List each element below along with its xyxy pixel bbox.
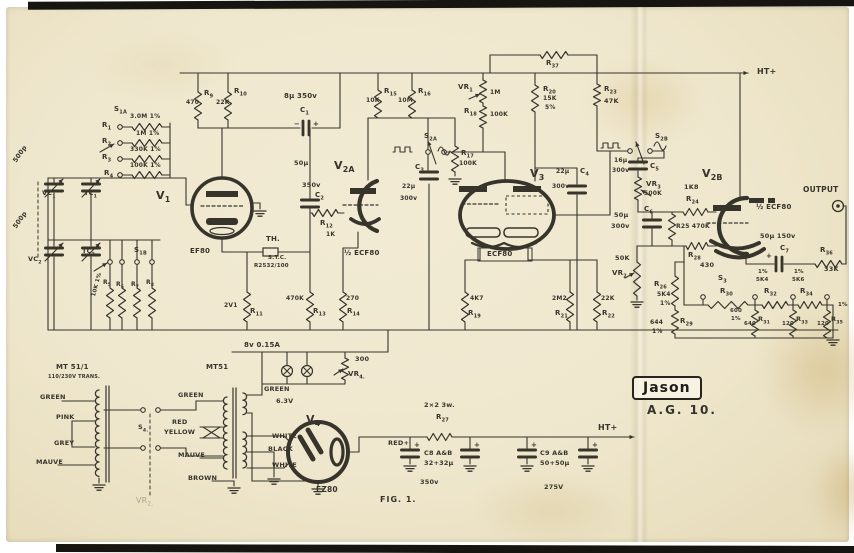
label-r30: R30 xyxy=(720,288,733,295)
label-r12: R12 xyxy=(320,220,333,227)
label-1m: 1M xyxy=(490,90,501,96)
label-vr3: VR3 xyxy=(646,181,661,188)
label-red: RED+ xyxy=(388,440,409,447)
label-15k: 15K xyxy=(543,96,557,102)
label-r25-470k: R25 470K xyxy=(676,224,710,230)
label-5: 5% xyxy=(545,105,556,111)
label-mauve-2: MAUVE xyxy=(178,452,205,459)
label-300v-2: 300v xyxy=(552,184,569,190)
label-ef80: EF80 xyxy=(190,248,210,255)
label-22k: 22K xyxy=(216,100,230,106)
label-r13: R13 xyxy=(313,308,326,315)
label-c2: C2 xyxy=(315,192,324,199)
label-33k: 33K xyxy=(824,266,839,273)
label-r36: R36 xyxy=(820,247,833,254)
model-number: A.G. 10. xyxy=(647,403,717,417)
jason-logo: Jason xyxy=(632,376,702,400)
label-4k7: 4K7 xyxy=(470,296,484,302)
label-640: 640 xyxy=(744,322,756,328)
label-275v: 275V xyxy=(544,484,563,491)
label-50-150v: 50µ 150v xyxy=(760,233,796,240)
label-500p-2: 500p xyxy=(12,210,28,229)
label-mt-51-1: MT 51/1 xyxy=(56,364,89,371)
label-50-50: 50+50µ xyxy=(540,460,570,467)
label-5k4: 5K4 xyxy=(657,292,671,298)
label-vc2: VC2 xyxy=(28,256,42,263)
label-c8-a-b: C8 A&B xyxy=(424,450,452,457)
label-vc1: VC1 xyxy=(42,190,56,197)
label-pink: PINK xyxy=(56,414,74,421)
label-vr1: VR1 xyxy=(458,84,473,91)
label-r22: R22 xyxy=(602,310,615,317)
label-ecf80-3: ½ ECF80 xyxy=(756,204,792,211)
label-mark-4: + xyxy=(414,442,420,449)
label-r28: R28 xyxy=(688,252,701,259)
schematic-scan: S1A3.0M 1%R11M 1%R2330K 1%R3100K 1%R4500… xyxy=(0,0,854,553)
label-tc2: TC2 xyxy=(82,248,95,255)
label-350v-2: 350v xyxy=(420,479,439,486)
label-r2: R2 xyxy=(102,138,111,145)
label-c9-a-b: C9 A&B xyxy=(540,450,568,457)
label-s3: S3 xyxy=(718,275,727,282)
label-100k-1: 100K 1% xyxy=(130,163,161,169)
label-r24: R24 xyxy=(686,196,699,203)
figure-label: FIG. 1. xyxy=(380,495,416,504)
label-6-3v: 6.3V xyxy=(276,398,293,405)
label-ez80: EZ80 xyxy=(316,486,338,494)
label-th: TH. xyxy=(266,236,280,243)
label-500p: 500p xyxy=(12,144,28,163)
label-3-0m-1: 3.0M 1% xyxy=(130,114,160,120)
label-red-2: RED xyxy=(172,419,187,426)
label-r32: R32 xyxy=(764,288,777,295)
label-16: 16µ xyxy=(614,158,627,164)
label-mark-2: + xyxy=(313,121,319,128)
label-r27: R27 xyxy=(436,414,449,421)
label-mauve: MAUVE xyxy=(36,459,63,466)
label-100k: 100K xyxy=(490,112,508,118)
label-1-6: 1% xyxy=(838,303,848,309)
label-v2b: V2B xyxy=(702,168,723,179)
label-1: 1% xyxy=(660,301,671,307)
label-r31: R31 xyxy=(758,316,770,323)
label-5k6: 5K6 xyxy=(792,278,805,284)
label-r10: R10 xyxy=(234,88,247,95)
label-120-2: 120 xyxy=(817,322,829,328)
label-c5: C5 xyxy=(650,163,659,170)
label-mark: − xyxy=(294,121,300,128)
label-green-3: GREEN xyxy=(178,392,204,399)
label-green: GREEN xyxy=(264,386,290,393)
label-s1b: S1B xyxy=(134,247,147,254)
label-mark-7: + xyxy=(592,442,598,449)
label-300v: 300v xyxy=(400,196,417,202)
label-270: 270 xyxy=(346,296,359,302)
label-32-32: 32+32µ xyxy=(424,460,454,467)
label-600: 600 xyxy=(730,309,742,315)
label-mark-6: + xyxy=(531,442,537,449)
label-22-2: 22µ xyxy=(556,169,569,175)
label-10k: 10K xyxy=(366,98,380,104)
label-300: 300 xyxy=(355,356,369,363)
label-r20: R20 xyxy=(543,86,556,93)
label-350v: 350v xyxy=(302,182,321,189)
label-v4: V4 xyxy=(306,414,320,425)
label-644: 644 xyxy=(650,320,663,326)
label-green-2: GREEN xyxy=(40,394,66,401)
label-50k: 50K xyxy=(615,255,630,262)
label-mt51: MT51 xyxy=(206,364,228,371)
label-ht-2: HT+ xyxy=(598,424,617,432)
label-1-2: 1% xyxy=(652,329,663,335)
label-22: 22µ xyxy=(402,184,415,190)
label-ht: HT+ xyxy=(757,68,776,76)
label-vr2-2: VR2. xyxy=(136,497,153,505)
label-1-5: 1% xyxy=(794,270,804,276)
label-r15: R15 xyxy=(384,88,397,95)
label-470: 470 xyxy=(186,100,199,106)
label-s2b: S2B xyxy=(655,133,668,140)
label-22k-2: 22K xyxy=(601,296,615,302)
label-v1: V1 xyxy=(156,190,170,201)
label-300v-4: 300v xyxy=(611,223,630,230)
label-r9: R9 xyxy=(204,90,213,97)
label-430: 430 xyxy=(700,262,714,269)
label-r14: R14 xyxy=(347,308,360,315)
label-tc1: TC1 xyxy=(84,190,97,197)
label-r23: R23 xyxy=(604,86,617,93)
label-r29: R29 xyxy=(680,318,693,325)
label-50-2: 50µ xyxy=(614,212,628,219)
label-c4: C4 xyxy=(580,168,589,175)
label-mark-5: + xyxy=(474,442,480,449)
label-1k: 1K xyxy=(326,232,335,238)
label-r7: R7 xyxy=(131,282,139,288)
label-r4: R4 xyxy=(104,170,113,177)
label-r35: R35 xyxy=(831,316,843,323)
label-2-2-3w: 2×2 3w. xyxy=(424,402,455,409)
label-v3: V3 xyxy=(530,168,544,179)
label-yellow: YELLOW xyxy=(164,429,195,436)
label-500k: 500K xyxy=(644,191,662,197)
label-r2532-100: R2532/100 xyxy=(254,264,289,270)
label-vr4: VR4. xyxy=(348,371,365,378)
label-r19: R19 xyxy=(468,310,481,317)
label-r17: R17 xyxy=(461,150,474,157)
label-ecf80-2: ECF80 xyxy=(487,251,512,258)
label-r26: R26 xyxy=(654,281,667,288)
label-1-4: 1% xyxy=(758,270,768,276)
label-8v-0-15a: 8v 0.15A xyxy=(244,342,280,349)
label-ecf80: ½ ECF80 xyxy=(344,250,380,257)
label-47k: 47K xyxy=(604,98,619,105)
label-120: 120 xyxy=(782,322,794,328)
label-r16: R16 xyxy=(418,88,431,95)
label-white: WHITE xyxy=(272,433,297,440)
label-c1: C1 xyxy=(300,107,309,114)
label-1-3: 1% xyxy=(731,317,741,323)
label-330k-1: 330K 1% xyxy=(130,147,161,153)
label-50: 50µ xyxy=(294,160,308,167)
label-r5: R5 xyxy=(103,280,111,286)
label-1k8: 1K8 xyxy=(684,184,699,191)
label-c6: C6 xyxy=(644,206,653,213)
label-c3: C3 xyxy=(415,164,424,171)
label-1m-1: 1M 1% xyxy=(136,131,159,137)
label-r21: R21 xyxy=(555,310,568,317)
label-s2a: S2A xyxy=(424,133,437,140)
label-output: OUTPUT xyxy=(803,186,839,194)
label-mark-3: + xyxy=(766,253,772,260)
label-grey: GREY xyxy=(54,440,74,447)
label-470k: 470K xyxy=(286,296,304,302)
label-black: BLACK xyxy=(268,446,293,453)
label-r1: R1 xyxy=(102,122,111,129)
label-vr2: VR2 xyxy=(612,270,627,277)
label-r3: R3 xyxy=(102,154,111,161)
label-8-350v: 8µ 350v xyxy=(284,93,317,100)
label-10k-1: 10K 1% xyxy=(92,272,104,297)
brand-name: Jason xyxy=(643,380,691,396)
label-r18: R18 xyxy=(464,108,477,115)
label-white-2: WHITE xyxy=(272,462,297,469)
label-brown: BROWN xyxy=(188,475,217,482)
label-2v1: 2V1 xyxy=(224,303,238,309)
label-110-230v-trans: 110/230V TRANS. xyxy=(48,375,100,380)
label-10m: 10M xyxy=(398,98,413,104)
label-r33: R33 xyxy=(796,316,808,323)
label-r34: R34 xyxy=(800,288,813,295)
label-r6: R6 xyxy=(116,282,124,288)
label-300v-3: 300v xyxy=(612,168,629,174)
label-s1a: S1A xyxy=(114,106,127,113)
label-v2a: V2A xyxy=(334,160,355,171)
label-r11: R11 xyxy=(250,308,263,315)
labels-layer: S1A3.0M 1%R11M 1%R2330K 1%R3100K 1%R4500… xyxy=(0,0,854,553)
label-s-t-c: S.T.C. xyxy=(268,256,286,262)
label-2m2: 2M2 xyxy=(552,296,567,302)
label-r37: R37 xyxy=(546,60,559,67)
label-100k-2: 100K xyxy=(459,161,477,167)
label-r8: R8 xyxy=(146,280,154,286)
label-s4: S4. xyxy=(138,424,148,431)
label-5k4-2: 5K4 xyxy=(756,278,769,284)
label-c7: C7 xyxy=(780,245,789,252)
